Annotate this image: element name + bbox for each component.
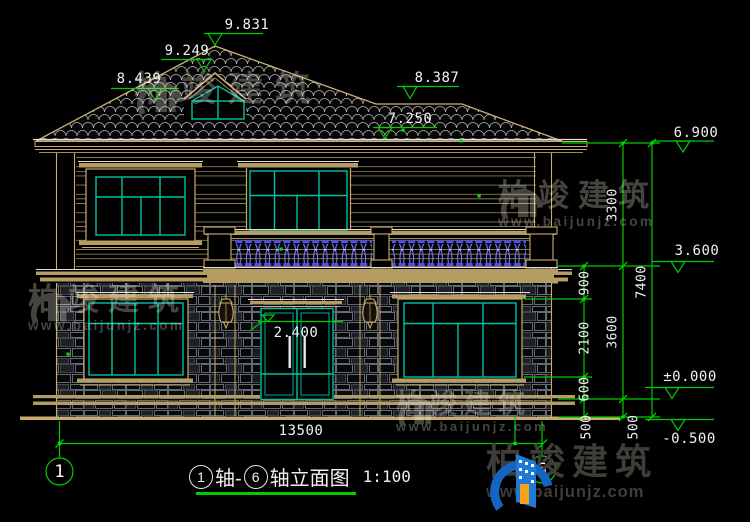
watermark-logo-icon [28,284,76,336]
elev-flag-6900 [652,141,714,152]
level-label-ground: -0.500 [662,431,716,447]
eave-fascia [33,140,587,153]
watermark: 柏竣建筑 [134,72,322,109]
second-floor-window-left [78,162,203,248]
level-label-floor2: 3.600 [675,243,720,259]
brand-logo: 柏竣建筑 www.baijunjz.com [486,444,658,502]
elev-flag-3600 [652,262,714,273]
elev-flag-0000 [645,388,714,399]
dim-label-600: 600 [578,377,593,402]
watermark: 柏竣建筑 www.baijunjz.com [498,180,658,229]
first-floor-window-right [390,293,530,386]
cad-elevation-canvas: 9.831 9.249 8.439 8.387 7.250 6.900 3.60… [0,0,750,522]
level-label-floor1: ±0.000 [663,369,717,385]
elev-flag-neg0500 [645,420,714,431]
dim-label-2100: 2100 [578,321,593,354]
title-axis-to: 6 [244,465,268,489]
level-label-ridge-right: 8.387 [415,70,460,86]
title-underline [196,492,356,495]
level-label-eave: 6.900 [674,125,719,141]
elev-flag-8387 [397,87,459,99]
title-axis-from: 1 [189,465,213,489]
level-label-dormer-ridge: 9.249 [165,43,210,59]
watermark: 柏竣建筑 www.baijunjz.com [28,284,188,333]
title-mid: 轴- [215,462,242,491]
watermark-logo-icon [396,390,440,438]
brand-logo-icon [486,444,558,518]
second-floor-balcony-door [237,162,359,231]
title-scale: 1:100 [363,467,411,486]
dim-label-900: 900 [578,271,593,296]
dim-label-500b: 500 [627,415,642,440]
watermark-logo-icon [498,180,546,232]
dim-label-door-height: 2.400 [274,325,319,341]
dim-label-3600: 3600 [606,315,621,348]
title-tail: 轴立面图 [270,462,350,491]
dim-label-overall-width: 13500 [279,423,324,439]
axis-number-1: 1 [54,462,64,482]
dim-label-7400: 7400 [635,265,650,298]
drawing-title: 1轴-6轴立面图1:100 [187,462,411,491]
level-label-eave-top: 7.250 [388,111,433,127]
level-label-ridge: 9.831 [225,17,270,33]
dim-label-500a: 500 [580,415,595,440]
watermark: 柏竣建筑 www.baijunjz.com [396,390,548,434]
elev-flag-9831 [204,34,263,46]
watermark-logo-icon [134,72,186,128]
